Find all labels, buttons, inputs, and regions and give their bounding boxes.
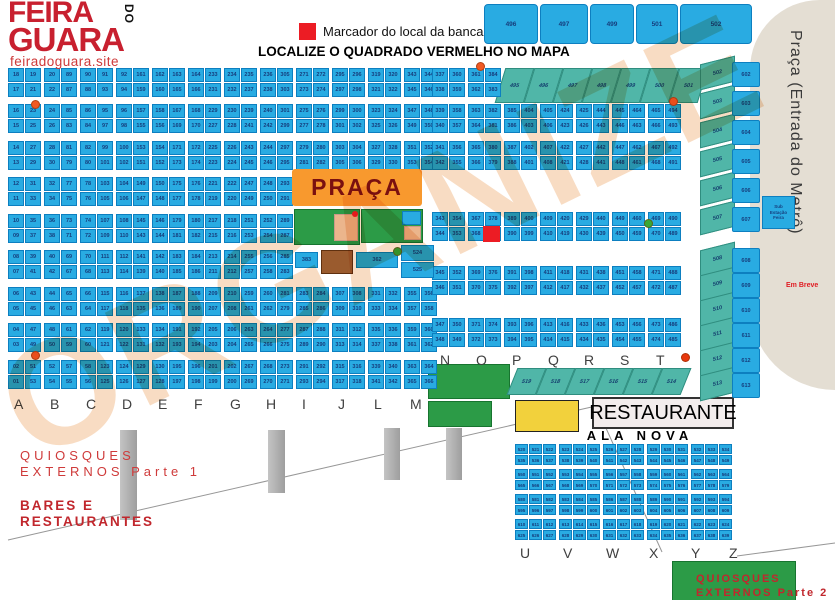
stall-cell[interactable]: 128 <box>152 375 168 389</box>
stall-cell[interactable]: 471 <box>648 266 664 280</box>
stall-cell[interactable]: 308 <box>349 287 365 301</box>
stall-cell[interactable]: 44 <box>44 287 60 301</box>
stall-cell[interactable]: 155 <box>133 119 149 133</box>
stall-cell[interactable]: 388 <box>504 156 520 170</box>
stall-cell[interactable]: 520 <box>515 444 528 454</box>
stall-cell[interactable]: 68 <box>80 265 96 279</box>
stall-cell[interactable]: 396 <box>521 318 537 332</box>
stall-cell[interactable]: 611 <box>529 519 542 529</box>
stall-cell[interactable]: 626 <box>529 530 542 540</box>
stall-cell[interactable]: 146 <box>152 214 168 228</box>
stall-cell[interactable]: 635 <box>661 530 674 540</box>
stall-cell[interactable]: 414 <box>540 333 556 347</box>
stall-cell[interactable]: 550 <box>515 469 528 479</box>
stall-cell[interactable]: 61 <box>61 323 77 337</box>
stall-cell[interactable]: 309 <box>332 302 348 316</box>
stall-cell[interactable]: 131 <box>133 338 149 352</box>
stall-cell[interactable]: 103 <box>97 177 113 191</box>
stall-cell[interactable]: 29 <box>25 156 41 170</box>
stall-cell[interactable]: 127 <box>133 375 149 389</box>
stall-cell[interactable]: 299 <box>277 119 293 133</box>
stall-cell[interactable]: 409 <box>540 212 556 226</box>
stall-cell[interactable]: 544 <box>647 455 660 465</box>
stall-cell[interactable]: 169 <box>169 119 185 133</box>
stall-cell[interactable]: 416 <box>557 318 573 332</box>
stall-cell[interactable]: 531 <box>675 444 688 454</box>
stall-cell[interactable]: 180 <box>188 214 204 228</box>
stall-cell[interactable]: 293 <box>277 177 293 191</box>
stall-cell[interactable]: 178 <box>188 192 204 206</box>
stall-cell[interactable]: 202 <box>224 360 240 374</box>
stall-cell[interactable]: 270 <box>260 375 276 389</box>
stall-cell[interactable]: 137 <box>133 287 149 301</box>
stall-cell[interactable]: 594 <box>719 494 732 504</box>
stall-cell[interactable]: 491 <box>665 156 681 170</box>
stall-cell[interactable]: 188 <box>188 287 204 301</box>
stall-cell[interactable]: 194 <box>188 338 204 352</box>
stall-cell[interactable]: 209 <box>205 287 221 301</box>
stall-cell[interactable]: 119 <box>97 323 113 337</box>
stall-cell[interactable]: 272 <box>313 68 329 82</box>
stall-cell[interactable]: 287 <box>277 229 293 243</box>
stall-cell[interactable]: 496 <box>484 4 538 44</box>
stall-cell[interactable]: 353 <box>449 227 465 241</box>
stall-cell[interactable]: 51 <box>25 360 41 374</box>
stall-cell[interactable]: 439 <box>593 227 609 241</box>
stall-cell[interactable]: 226 <box>224 141 240 155</box>
stall-cell[interactable]: 45 <box>25 302 41 316</box>
stall-cell[interactable]: 338 <box>432 83 448 97</box>
stall-cell[interactable]: 428 <box>576 156 592 170</box>
stall-cell[interactable]: 536 <box>529 455 542 465</box>
stall-cell[interactable]: 606 <box>732 178 760 203</box>
stall-cell[interactable]: 397 <box>521 281 537 295</box>
stall-cell[interactable]: 382 <box>485 104 501 118</box>
stall-cell[interactable]: 566 <box>529 480 542 490</box>
stall-cell[interactable]: 373 <box>485 333 501 347</box>
stall-cell[interactable]: 473 <box>648 318 664 332</box>
stall-cell[interactable]: 275 <box>296 104 312 118</box>
stall-cell[interactable]: 385 <box>504 104 520 118</box>
stall-cell[interactable]: 573 <box>631 480 644 490</box>
stall-cell[interactable]: 590 <box>661 494 674 504</box>
stall-cell[interactable]: 559 <box>647 469 660 479</box>
stall-cell[interactable]: 554 <box>573 469 586 479</box>
stall-cell[interactable]: 569 <box>573 480 586 490</box>
stall-cell[interactable]: 281 <box>277 287 293 301</box>
stall-cell[interactable]: 405 <box>540 104 556 118</box>
stall-cell[interactable]: 423 <box>557 119 573 133</box>
stall-cell[interactable]: 636 <box>675 530 688 540</box>
stall-cell[interactable]: 271 <box>277 375 293 389</box>
stall-cell[interactable]: 350 <box>449 318 465 332</box>
stall-cell[interactable]: 376 <box>485 266 501 280</box>
stall-cell[interactable]: 355 <box>404 287 420 301</box>
stall-cell[interactable]: 389 <box>504 212 520 226</box>
stall-cell[interactable]: 599 <box>573 505 586 515</box>
stall-cell[interactable]: 31 <box>25 177 41 191</box>
stall-cell[interactable]: 604 <box>647 505 660 515</box>
stall-cell[interactable]: 203 <box>205 338 221 352</box>
stall-cell[interactable]: 602 <box>732 62 760 87</box>
stall-cell[interactable]: 583 <box>559 494 572 504</box>
stall-cell[interactable]: 436 <box>593 318 609 332</box>
stall-cell[interactable]: 424 <box>557 104 573 118</box>
stall-cell[interactable]: 525 <box>401 262 434 278</box>
stall-cell[interactable]: 587 <box>617 494 630 504</box>
stall-cell[interactable]: 181 <box>169 229 185 243</box>
stall-cell[interactable]: 490 <box>665 212 681 226</box>
stall-cell[interactable]: 262 <box>260 302 276 316</box>
stall-cell[interactable]: 30 <box>44 156 60 170</box>
stall-cell[interactable]: 450 <box>612 227 628 241</box>
stall-cell[interactable]: 422 <box>557 141 573 155</box>
stall-cell[interactable]: 415 <box>557 333 573 347</box>
stall-cell[interactable]: 161 <box>133 68 149 82</box>
stall-cell[interactable]: 574 <box>647 480 660 490</box>
stall-cell[interactable]: 207 <box>205 302 221 316</box>
stall-cell[interactable]: 53 <box>25 375 41 389</box>
stall-cell[interactable]: 448 <box>612 156 628 170</box>
stall-cell[interactable]: 523 <box>559 444 572 454</box>
stall-cell[interactable]: 432 <box>576 281 592 295</box>
stall-cell[interactable]: 378 <box>485 212 501 226</box>
stall-cell[interactable]: 193 <box>169 338 185 352</box>
stall-cell[interactable]: 86 <box>80 104 96 118</box>
stall-cell[interactable]: 125 <box>97 375 113 389</box>
stall-cell[interactable]: 264 <box>260 323 276 337</box>
stall-cell[interactable]: 429 <box>576 212 592 226</box>
stall-cell[interactable]: 530 <box>661 444 674 454</box>
stall-cell[interactable]: 578 <box>705 480 718 490</box>
stall-cell[interactable]: 47 <box>25 323 41 337</box>
stall-cell[interactable]: 34 <box>44 192 60 206</box>
stall-cell[interactable]: 183 <box>169 250 185 264</box>
stall-cell[interactable]: 630 <box>587 530 600 540</box>
stall-cell[interactable]: 338 <box>385 338 401 352</box>
stall-cell[interactable]: 521 <box>529 444 542 454</box>
stall-cell[interactable]: 24 <box>44 104 60 118</box>
stall-cell[interactable]: 28 <box>44 141 60 155</box>
stall-cell[interactable]: 148 <box>152 192 168 206</box>
stall-cell[interactable]: 261 <box>241 302 257 316</box>
stall-cell[interactable]: 230 <box>224 104 240 118</box>
stall-cell[interactable]: 33 <box>25 192 41 206</box>
stall-cell[interactable]: 77 <box>61 177 77 191</box>
stall-cell[interactable]: 461 <box>629 156 645 170</box>
stall-cell[interactable]: 329 <box>368 156 384 170</box>
stall-cell[interactable]: 90 <box>80 68 96 82</box>
stall-cell[interactable]: 328 <box>385 141 401 155</box>
stall-cell[interactable]: 14 <box>8 141 24 155</box>
stall-cell[interactable]: 438 <box>593 266 609 280</box>
stall-cell[interactable]: 03 <box>8 338 24 352</box>
stall-cell[interactable]: 411 <box>540 266 556 280</box>
stall-cell[interactable]: 206 <box>224 323 240 337</box>
stall-cell[interactable]: 323 <box>368 104 384 118</box>
stall-cell[interactable]: 283 <box>296 287 312 301</box>
stall-cell[interactable]: 136 <box>152 302 168 316</box>
stall-cell[interactable]: 348 <box>432 333 448 347</box>
stall-cell[interactable]: 306 <box>349 156 365 170</box>
stall-cell[interactable]: 175 <box>169 177 185 191</box>
stall-cell[interactable]: 111 <box>97 250 113 264</box>
stall-cell[interactable]: 387 <box>504 141 520 155</box>
stall-cell[interactable]: 474 <box>648 333 664 347</box>
stall-cell[interactable]: 246 <box>260 156 276 170</box>
stall-cell[interactable]: 364 <box>468 119 484 133</box>
stall-cell[interactable]: 534 <box>719 444 732 454</box>
stall-cell[interactable]: 526 <box>603 444 616 454</box>
stall-cell[interactable]: 278 <box>313 119 329 133</box>
stall-cell[interactable]: 118 <box>116 302 132 316</box>
stall-cell[interactable]: 311 <box>332 323 348 337</box>
stall-cell[interactable]: 247 <box>241 177 257 191</box>
stall-cell[interactable]: 174 <box>188 156 204 170</box>
stall-cell[interactable]: 52 <box>44 360 60 374</box>
stall-cell[interactable]: 245 <box>241 156 257 170</box>
stall-cell[interactable]: 441 <box>593 156 609 170</box>
stall-cell[interactable]: 221 <box>205 177 221 191</box>
stall-cell[interactable]: 152 <box>152 156 168 170</box>
stall-cell[interactable]: 219 <box>205 192 221 206</box>
stall-cell[interactable]: 240 <box>260 104 276 118</box>
stall-cell[interactable]: 99 <box>97 141 113 155</box>
stall-cell[interactable]: 325 <box>368 119 384 133</box>
stall-cell[interactable]: 608 <box>732 248 760 273</box>
stall-cell[interactable]: 349 <box>449 333 465 347</box>
stall-cell[interactable]: 166 <box>188 83 204 97</box>
stall-cell[interactable]: 571 <box>603 480 616 490</box>
stall-cell[interactable]: 102 <box>116 156 132 170</box>
stall-cell[interactable]: 292 <box>313 360 329 374</box>
stall-cell[interactable]: 187 <box>169 287 185 301</box>
stall-cell[interactable]: 225 <box>205 141 221 155</box>
stall-cell[interactable]: 410 <box>540 227 556 241</box>
stall-cell[interactable]: 458 <box>629 266 645 280</box>
stall-cell[interactable]: 365 <box>468 141 484 155</box>
stall-cell[interactable]: 547 <box>691 455 704 465</box>
stall-cell[interactable]: 88 <box>80 83 96 97</box>
stall-cell[interactable]: 223 <box>205 156 221 170</box>
stall-cell[interactable]: 386 <box>504 119 520 133</box>
stall-cell[interactable]: 381 <box>485 119 501 133</box>
stall-cell[interactable]: 220 <box>224 192 240 206</box>
stall-cell[interactable]: 154 <box>152 141 168 155</box>
stall-cell[interactable]: 315 <box>332 360 348 374</box>
stall-cell[interactable]: 525 <box>587 444 600 454</box>
stall-cell[interactable]: 625 <box>515 530 528 540</box>
stall-cell[interactable]: 15 <box>8 119 24 133</box>
stall-cell[interactable]: 340 <box>432 119 448 133</box>
stall-cell[interactable]: 171 <box>169 141 185 155</box>
stall-cell[interactable]: 227 <box>205 119 221 133</box>
stall-cell[interactable]: 366 <box>468 156 484 170</box>
stall-cell[interactable]: 391 <box>504 266 520 280</box>
stall-cell[interactable]: 296 <box>349 68 365 82</box>
stall-cell[interactable]: 420 <box>557 212 573 226</box>
stall-cell[interactable]: 121 <box>97 338 113 352</box>
stall-cell[interactable]: 273 <box>296 83 312 97</box>
stall-cell[interactable]: 87 <box>61 83 77 97</box>
stall-cell[interactable]: 605 <box>732 149 760 174</box>
stall-cell[interactable]: 459 <box>629 227 645 241</box>
stall-cell[interactable]: 579 <box>719 480 732 490</box>
stall-cell[interactable]: 601 <box>603 505 616 515</box>
stall-cell[interactable]: 92 <box>116 68 132 82</box>
stall-cell[interactable]: 608 <box>705 505 718 515</box>
stall-cell[interactable]: 580 <box>515 494 528 504</box>
stall-cell[interactable]: 242 <box>260 119 276 133</box>
stall-cell[interactable]: 339 <box>368 360 384 374</box>
stall-cell[interactable]: 622 <box>691 519 704 529</box>
stall-cell[interactable]: 244 <box>260 141 276 155</box>
stall-cell[interactable]: 210 <box>224 287 240 301</box>
stall-cell[interactable]: 576 <box>675 480 688 490</box>
stall-cell[interactable]: 351 <box>404 141 420 155</box>
stall-cell[interactable]: 48 <box>44 323 60 337</box>
stall-cell[interactable]: 597 <box>543 505 556 515</box>
stall-cell[interactable]: 260 <box>260 287 276 301</box>
stall-cell[interactable]: 541 <box>603 455 616 465</box>
stall-cell[interactable]: 266 <box>260 338 276 352</box>
stall-cell[interactable]: 267 <box>241 360 257 374</box>
stall-cell[interactable]: 603 <box>732 91 760 116</box>
stall-cell[interactable]: 351 <box>449 281 465 295</box>
stall-cell[interactable]: 466 <box>648 119 664 133</box>
stall-cell[interactable]: 346 <box>432 281 448 295</box>
stall-cell[interactable]: 447 <box>612 141 628 155</box>
stall-cell[interactable]: 07 <box>8 265 24 279</box>
stall-cell[interactable]: 286 <box>313 302 329 316</box>
stall-cell[interactable]: 274 <box>313 83 329 97</box>
stall-cell[interactable]: 442 <box>593 141 609 155</box>
stall-cell[interactable]: 106 <box>116 192 132 206</box>
stall-cell[interactable]: 173 <box>169 156 185 170</box>
stall-cell[interactable]: 372 <box>468 333 484 347</box>
stall-cell[interactable]: 314 <box>349 338 365 352</box>
stall-cell[interactable]: 357 <box>449 119 465 133</box>
stall-cell[interactable]: 80 <box>80 156 96 170</box>
stall-cell[interactable]: 611 <box>732 323 760 348</box>
stall-cell[interactable]: 56 <box>80 375 96 389</box>
stall-cell[interactable]: 320 <box>385 68 401 82</box>
stall-cell[interactable]: 358 <box>421 302 437 316</box>
stall-cell[interactable]: 122 <box>116 338 132 352</box>
stall-cell[interactable]: 627 <box>543 530 556 540</box>
stall-cell[interactable]: 380 <box>485 141 501 155</box>
stall-cell[interactable]: 305 <box>332 156 348 170</box>
stall-cell[interactable]: 83 <box>61 119 77 133</box>
stall-cell[interactable]: 542 <box>617 455 630 465</box>
stall-cell[interactable]: 609 <box>719 505 732 515</box>
stall-cell[interactable]: 285 <box>277 250 293 264</box>
stall-cell[interactable]: 252 <box>260 214 276 228</box>
stall-cell[interactable]: 562 <box>691 469 704 479</box>
stall-cell[interactable]: 98 <box>116 119 132 133</box>
stall-cell[interactable]: 19 <box>25 68 41 82</box>
stall-cell[interactable]: 60 <box>80 338 96 352</box>
stall-cell[interactable]: 497 <box>540 4 588 44</box>
stall-cell[interactable]: 577 <box>691 480 704 490</box>
stall-cell[interactable]: 332 <box>385 287 401 301</box>
stall-cell[interactable]: 607 <box>732 207 760 232</box>
stall-cell[interactable]: 545 <box>661 455 674 465</box>
stall-cell[interactable]: 322 <box>385 83 401 97</box>
stall-cell[interactable]: 368 <box>468 227 484 241</box>
stall-cell[interactable]: 279 <box>277 302 293 316</box>
stall-cell[interactable]: 614 <box>573 519 586 529</box>
stall-cell[interactable]: 79 <box>61 156 77 170</box>
stall-cell[interactable]: 345 <box>432 266 448 280</box>
stall-cell[interactable]: 142 <box>152 250 168 264</box>
stall-cell[interactable]: 347 <box>404 104 420 118</box>
stall-cell[interactable]: 228 <box>224 119 240 133</box>
stall-cell[interactable]: 384 <box>485 68 501 82</box>
stall-cell[interactable]: 190 <box>188 302 204 316</box>
stall-cell[interactable]: 150 <box>152 177 168 191</box>
stall-cell[interactable]: 399 <box>521 227 537 241</box>
stall-cell[interactable]: 535 <box>515 455 528 465</box>
stall-cell[interactable]: 36 <box>44 214 60 228</box>
stall-cell[interactable]: 585 <box>587 494 600 504</box>
stall-cell[interactable]: 538 <box>559 455 572 465</box>
stall-cell[interactable]: 456 <box>629 318 645 332</box>
stall-cell[interactable]: 295 <box>277 156 293 170</box>
stall-cell[interactable]: 575 <box>661 480 674 490</box>
stall-cell[interactable]: 431 <box>576 266 592 280</box>
stall-cell[interactable]: 457 <box>629 281 645 295</box>
stall-cell[interactable]: 603 <box>631 505 644 515</box>
stall-cell[interactable]: 555 <box>587 469 600 479</box>
stall-cell[interactable]: 251 <box>241 214 257 228</box>
stall-cell[interactable]: 336 <box>385 323 401 337</box>
stall-cell[interactable]: 604 <box>732 120 760 145</box>
red-marker[interactable] <box>483 226 500 242</box>
stall-cell[interactable]: 259 <box>241 287 257 301</box>
stall-cell[interactable]: 612 <box>732 348 760 373</box>
stall-cell[interactable]: 132 <box>152 338 168 352</box>
stall-cell[interactable]: 440 <box>593 212 609 226</box>
stall-cell[interactable]: 623 <box>705 519 718 529</box>
stall-cell[interactable]: 610 <box>515 519 528 529</box>
stall-cell[interactable]: 449 <box>612 212 628 226</box>
stall-cell[interactable]: 42 <box>44 265 60 279</box>
stall-cell[interactable]: 493 <box>665 119 681 133</box>
stall-cell[interactable]: 591 <box>675 494 688 504</box>
stall-cell[interactable]: 632 <box>617 530 630 540</box>
stall-cell[interactable]: 621 <box>675 519 688 529</box>
stall-cell[interactable]: 229 <box>205 104 221 118</box>
stall-cell[interactable]: 82 <box>80 141 96 155</box>
stall-cell[interactable]: 215 <box>205 229 221 243</box>
stall-cell[interactable]: 345 <box>404 83 420 97</box>
stall-cell[interactable]: 279 <box>296 141 312 155</box>
stall-cell[interactable]: 419 <box>557 227 573 241</box>
stall-cell[interactable]: 549 <box>719 455 732 465</box>
stall-cell[interactable]: 539 <box>573 455 586 465</box>
stall-cell[interactable]: 460 <box>629 212 645 226</box>
stall-cell[interactable]: 522 <box>543 444 556 454</box>
stall-cell[interactable]: 116 <box>116 287 132 301</box>
stall-cell[interactable]: 289 <box>277 214 293 228</box>
stall-cell[interactable]: 27 <box>25 141 41 155</box>
stall-cell[interactable]: 159 <box>133 83 149 97</box>
stall-cell[interactable]: 418 <box>557 266 573 280</box>
stall-cell[interactable]: 22 <box>44 83 60 97</box>
stall-cell[interactable]: 184 <box>188 250 204 264</box>
stall-cell[interactable]: 421 <box>557 156 573 170</box>
